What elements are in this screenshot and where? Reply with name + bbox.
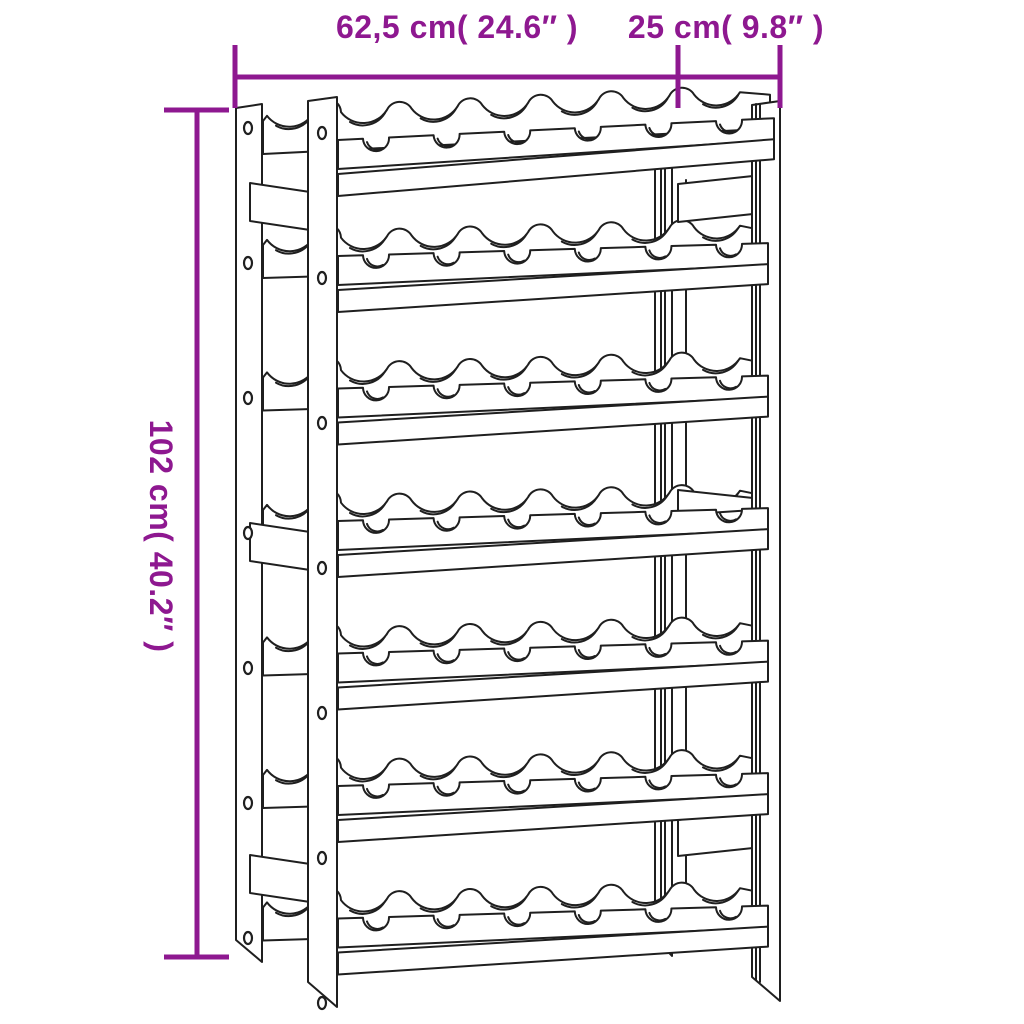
screw	[318, 562, 326, 574]
screw	[318, 852, 326, 864]
screw	[244, 932, 252, 944]
screw	[318, 127, 326, 139]
height-dimension-label: 102 cm( 40.2″ )	[145, 420, 177, 653]
wine-rack-line-art	[236, 88, 780, 1009]
screw	[244, 122, 252, 134]
right-side-bracket	[678, 176, 753, 222]
screw	[244, 662, 252, 674]
screw	[244, 797, 252, 809]
screw	[244, 257, 252, 269]
depth-dimension-label: 25 cm( 9.8″ )	[628, 11, 824, 43]
screw	[318, 707, 326, 719]
width-dimension-label: 62,5 cm( 24.6″ )	[336, 11, 578, 43]
left-side-bracket	[250, 523, 310, 570]
screw	[318, 417, 326, 429]
screw	[318, 272, 326, 284]
screw	[318, 997, 326, 1009]
left-side-bracket	[250, 183, 310, 230]
left-side-bracket	[250, 855, 310, 902]
screw	[244, 392, 252, 404]
front-left-post	[308, 97, 337, 1007]
screw	[244, 527, 252, 539]
diagram-canvas: 62,5 cm( 24.6″ ) 25 cm( 9.8″ ) 102 cm( 4…	[0, 0, 1024, 1024]
